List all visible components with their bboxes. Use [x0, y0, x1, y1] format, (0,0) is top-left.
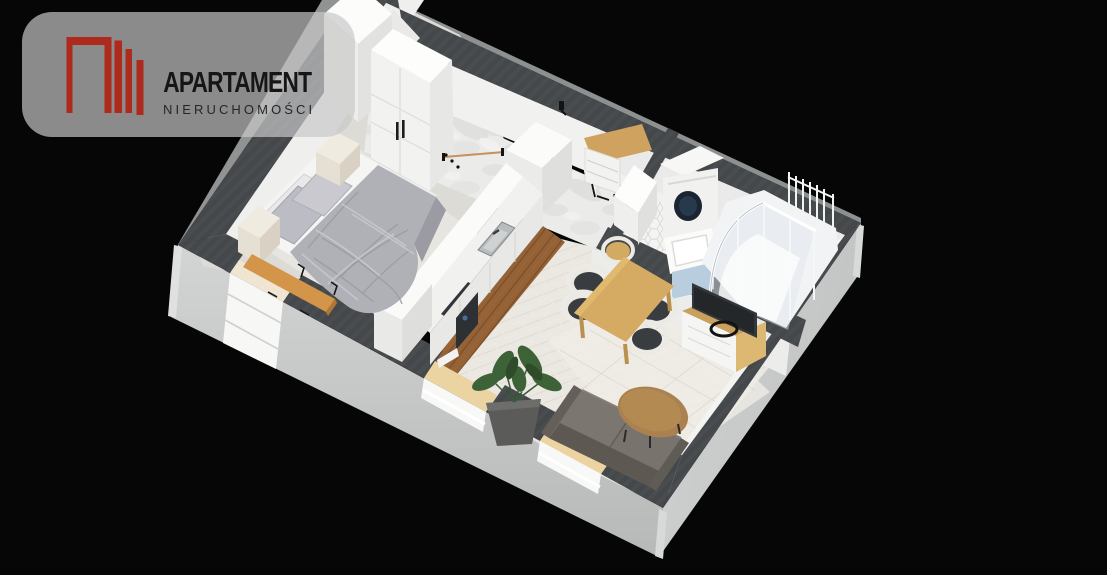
svg-text:NIERUCHOMOŚCI: NIERUCHOMOŚCI [163, 102, 315, 117]
svg-text:APARTAMENT: APARTAMENT [163, 68, 312, 99]
